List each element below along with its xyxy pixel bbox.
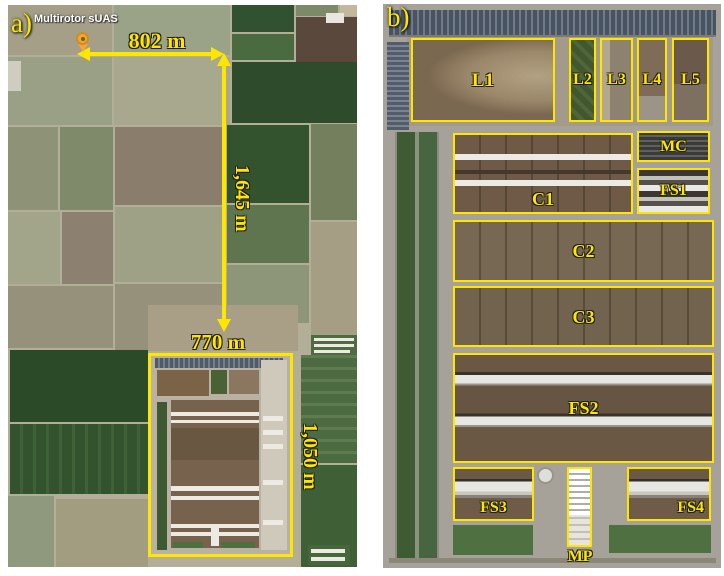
barn-buildings — [311, 335, 357, 355]
field-patch — [62, 212, 113, 284]
building-roof — [263, 430, 283, 435]
panel-b-label: b) — [387, 4, 410, 31]
region-c3-corrals: C3 — [453, 286, 714, 347]
barn-roof — [171, 412, 259, 416]
field-patch — [56, 499, 148, 567]
region-c1-corrals: C1 — [453, 133, 633, 214]
field-patch — [232, 62, 357, 123]
panel-a-satellite-map: a) Multirotor sUAS 802 m 1,645 m 770 m 1… — [8, 5, 357, 567]
field-patch — [232, 5, 294, 32]
region-label: C2 — [573, 242, 595, 260]
barn-roof — [311, 549, 345, 553]
field-patch — [8, 212, 60, 284]
arrowhead-up — [217, 53, 231, 66]
facility-outline-box — [148, 353, 293, 557]
green-field-strip — [395, 132, 439, 560]
field-patch — [115, 127, 225, 205]
field-patch — [60, 127, 113, 210]
field-patch — [10, 424, 148, 494]
road-edge — [389, 558, 716, 563]
barn-roof — [311, 557, 345, 561]
barn-roof — [171, 486, 259, 491]
measurement-1645m: 1,645 m — [232, 165, 252, 232]
region-l5-lagoon: L5 — [672, 38, 709, 122]
grass-patch — [221, 542, 255, 548]
barn-roof — [314, 338, 354, 341]
solar-array-strip — [389, 10, 716, 37]
region-fs2-freestall: FS2 — [453, 353, 714, 463]
milking-parlor-building — [211, 526, 219, 546]
grass-patch — [173, 542, 203, 548]
map-pin-dot — [81, 37, 85, 41]
corral-block — [171, 428, 259, 460]
building-roof — [263, 444, 283, 449]
barn-roof — [171, 496, 259, 500]
field-patch — [232, 34, 294, 60]
region-l1-lagoon: L1 — [411, 38, 555, 122]
building-roof — [263, 520, 283, 525]
corral-area — [171, 400, 259, 548]
distance-line-vertical — [222, 63, 226, 321]
field-patch — [8, 286, 113, 348]
region-l3-lagoon: L3 — [600, 38, 633, 122]
green-strip — [157, 402, 167, 550]
farm-buildings — [8, 61, 21, 91]
region-label: MC — [660, 139, 687, 155]
region-label: L3 — [607, 72, 626, 88]
panel-a-label: a) — [11, 10, 32, 37]
field-patch — [10, 350, 148, 422]
region-label: FS1 — [660, 183, 687, 199]
field-patch — [8, 127, 58, 210]
storage-tank — [537, 467, 554, 484]
uas-marker-label: Multirotor sUAS — [34, 13, 118, 25]
parlor-building — [569, 515, 590, 545]
field-patch — [8, 496, 54, 567]
buildings-column — [261, 360, 287, 550]
region-label-mp: MP — [561, 549, 599, 565]
region-l4-lagoon: L4 — [637, 38, 667, 122]
region-mc: MC — [637, 131, 710, 162]
distance-arrow-horizontal — [89, 52, 212, 56]
panel-b-facility-map: b) L1 L2 L3 L4 L5 MC FS1 C1 — [383, 4, 721, 568]
barn-roof — [455, 180, 631, 186]
corral-lane — [455, 170, 631, 174]
barn-roof — [314, 344, 354, 347]
region-label: C1 — [532, 190, 554, 208]
region-c2-corrals: C2 — [453, 220, 714, 282]
region-label: C3 — [573, 308, 595, 326]
measurement-770m: 770 m — [153, 332, 283, 353]
barn-roof — [171, 420, 259, 423]
region-label: FS2 — [568, 399, 598, 417]
map-pin-tail — [78, 44, 88, 52]
field-patch — [114, 57, 230, 125]
barn-roof — [314, 350, 350, 353]
region-mp-milking-parlor — [567, 467, 592, 547]
region-fs4-freestall: FS4 — [627, 467, 711, 521]
lagoon — [157, 370, 209, 396]
grass-patch — [609, 525, 711, 553]
field-patch — [296, 17, 357, 63]
measurement-802m: 802 m — [97, 30, 217, 52]
building-roof — [263, 480, 283, 485]
region-label: FS3 — [480, 500, 507, 516]
region-label: L5 — [681, 72, 700, 88]
solar-array-left — [387, 42, 409, 130]
region-label: L1 — [472, 71, 494, 90]
region-l2-lagoon: L2 — [569, 38, 596, 122]
lagoon — [229, 370, 259, 394]
region-label: L4 — [643, 72, 662, 88]
region-fs3-freestall: FS3 — [453, 467, 534, 521]
field-patch — [311, 124, 357, 220]
region-label: FS4 — [677, 500, 704, 516]
barn-buildings — [308, 545, 350, 565]
map-pin-icon — [76, 32, 89, 45]
region-fs1-freestall: FS1 — [637, 168, 710, 214]
building-roof — [263, 416, 283, 421]
figure: a) Multirotor sUAS 802 m 1,645 m 770 m 1… — [0, 0, 724, 576]
field-patch — [311, 222, 357, 352]
grass-patch — [453, 525, 533, 555]
field-patch — [8, 57, 112, 125]
field-patch — [115, 207, 225, 282]
region-label: L2 — [573, 72, 592, 88]
measurement-1050m: 1,050 m — [300, 423, 320, 490]
lagoon — [211, 370, 227, 394]
farm-buildings — [326, 13, 344, 23]
barn-roof — [455, 154, 631, 160]
